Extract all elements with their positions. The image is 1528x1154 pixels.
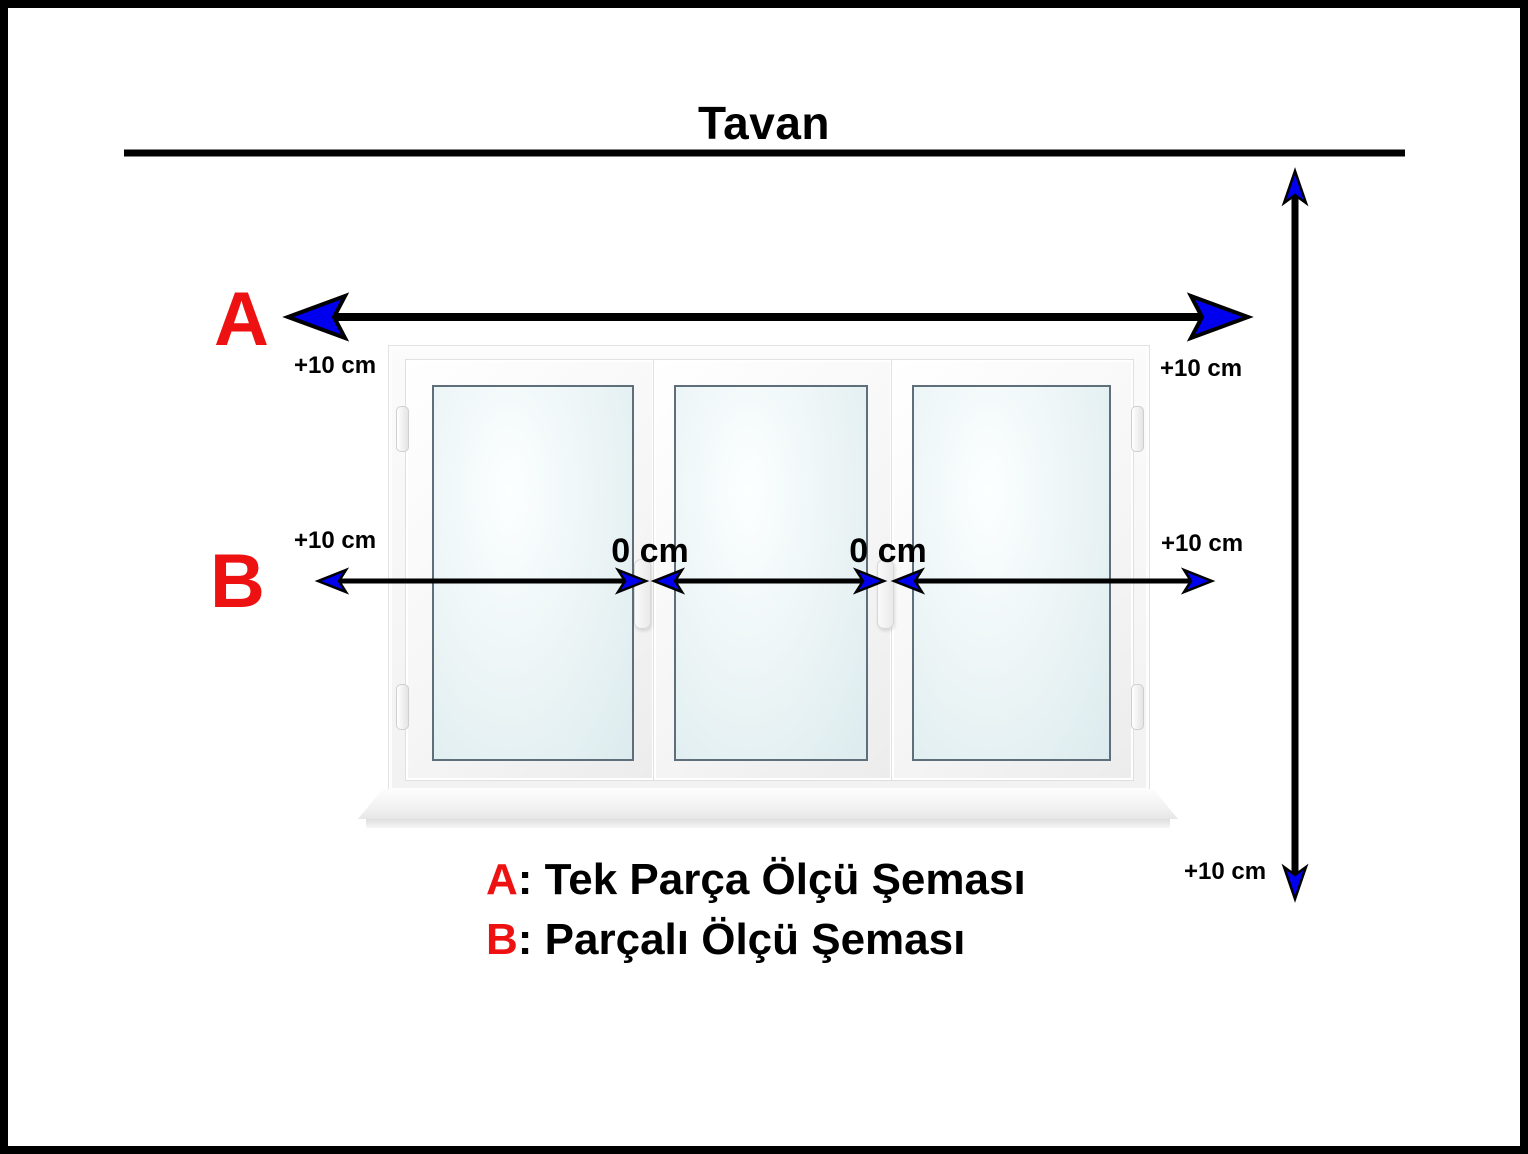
window-sill <box>358 789 1178 819</box>
ceiling-title: Tavan <box>0 96 1528 150</box>
legend: A: Tek Parça Ölçü Şeması B: Parçalı Ölçü… <box>486 850 1026 970</box>
window-sash-right <box>891 359 1134 781</box>
marker-b: B <box>210 544 265 620</box>
legend-key-a: A <box>486 855 518 904</box>
legend-text-b: : Parçalı Ölçü Şeması <box>518 915 966 964</box>
marker-a: A <box>214 282 269 358</box>
offset-label-middle-right: +10 cm <box>1161 530 1243 558</box>
offset-label-middle-left: +10 cm <box>294 527 376 555</box>
vertical-height-arrow <box>1284 171 1306 899</box>
zero-label-left-mullion: 0 cm <box>611 532 689 571</box>
legend-key-b: B <box>486 915 518 964</box>
hinge-top-right <box>1131 406 1144 452</box>
window-measurement-diagram: Tavan <box>0 0 1528 1154</box>
arrow-a-left-head <box>288 296 345 338</box>
legend-text-a: : Tek Parça Ölçü Şeması <box>518 855 1026 904</box>
offset-label-bottom-right: +10 cm <box>1184 858 1266 886</box>
offset-label-top-left: +10 cm <box>294 352 376 380</box>
window-illustration <box>388 345 1150 792</box>
legend-line-a: A: Tek Parça Ölçü Şeması <box>486 850 1026 910</box>
arrow-a-full-width <box>288 296 1248 338</box>
legend-line-b: B: Parçalı Ölçü Şeması <box>486 910 1026 970</box>
hinge-bottom-left <box>396 684 409 730</box>
window-glass-right <box>912 385 1111 761</box>
arrow-a-right-head <box>1191 296 1248 338</box>
window-glass-left <box>432 385 634 761</box>
hinge-top-left <box>396 406 409 452</box>
zero-label-right-mullion: 0 cm <box>849 532 927 571</box>
offset-label-top-right: +10 cm <box>1160 355 1242 383</box>
window-glass-middle <box>674 385 868 761</box>
window-sill-shadow <box>366 819 1170 828</box>
hinge-bottom-right <box>1131 684 1144 730</box>
